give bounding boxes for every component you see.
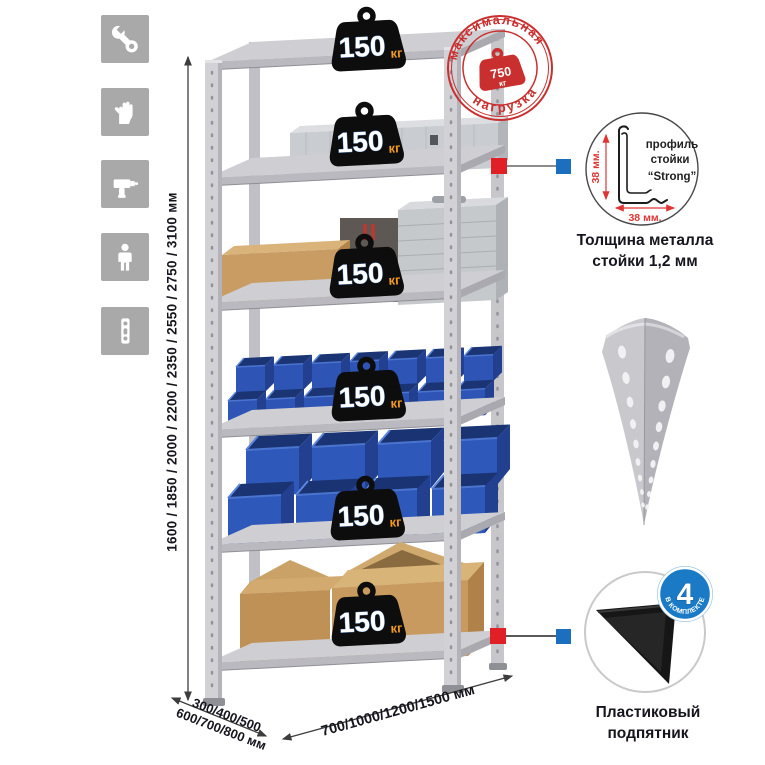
shelf-load-unit: кг xyxy=(390,45,403,61)
person-icon xyxy=(109,241,141,273)
profile-label-2: стойки xyxy=(651,154,690,166)
profile-label-3: “Strong” xyxy=(648,171,697,183)
shelf-load-unit: кг xyxy=(390,620,403,636)
icon-tile-gloves xyxy=(101,88,149,136)
plastic-foot-diagram: 4 в комплекте xyxy=(585,567,713,693)
post-profile-diagram: 38 мм. 38 мм. профиль стойки “Strong” xyxy=(586,113,698,225)
stamp-weight-icon: 750 кг xyxy=(474,46,526,92)
shelf-load-value: 150 xyxy=(338,30,386,63)
blue-marker xyxy=(556,159,571,174)
included-count-badge: 4 в комплекте xyxy=(658,567,713,622)
load-badge-1: 150 кг xyxy=(329,8,406,72)
vertical-dim-label: 38 мм. xyxy=(590,150,602,183)
icon-tile-profile xyxy=(101,307,149,355)
icon-tile-drill xyxy=(101,160,149,208)
icon-tile-wrench xyxy=(101,15,149,63)
angle-post-image xyxy=(602,318,690,525)
shelf-load-value: 150 xyxy=(336,125,384,158)
plastic-foot-caption: Пластиковый подпятник xyxy=(565,702,731,744)
blue-marker xyxy=(556,629,571,644)
horizontal-dim-label: 38 мм. xyxy=(628,212,661,224)
shelf-load-value: 150 xyxy=(337,499,385,532)
shelf-load-unit: кг xyxy=(388,272,401,288)
profile-caption-line2: стойки 1,2 мм xyxy=(557,251,733,272)
height-dimension-label: 1600 / 1850 / 2000 / 2200 / 2350 / 2550 … xyxy=(165,192,180,552)
red-marker xyxy=(490,628,506,644)
gloves-icon xyxy=(109,96,141,128)
shelf-load-value: 150 xyxy=(338,605,386,638)
icon-tile-person xyxy=(101,233,149,281)
drill-icon xyxy=(109,168,141,200)
foot-caption-line1: Пластиковый xyxy=(565,702,731,723)
wrench-icon xyxy=(109,23,141,55)
shelving-product-infographic: 150 кг 150 кг 150 кг 150 кг 150 кг xyxy=(0,0,765,765)
shelf-load-unit: кг xyxy=(389,514,402,530)
shelf-load-unit: кг xyxy=(390,395,403,411)
shelf-load-value: 150 xyxy=(338,380,386,413)
foot-caption-line2: подпятник xyxy=(565,723,731,744)
shelf-load-unit: кг xyxy=(388,140,401,156)
load-badge-2: 150 кг xyxy=(327,103,404,167)
red-marker xyxy=(491,158,507,174)
connector-top xyxy=(491,158,571,174)
included-count: 4 xyxy=(677,578,694,611)
shelf-load-value: 150 xyxy=(336,257,384,290)
connector-bottom xyxy=(490,628,571,644)
perforated-profile-icon xyxy=(109,315,141,347)
profile-thickness-caption: Толщина металла стойки 1,2 мм xyxy=(557,230,733,272)
profile-caption-line1: Толщина металла xyxy=(557,230,733,251)
profile-label-1: профиль xyxy=(646,139,699,151)
